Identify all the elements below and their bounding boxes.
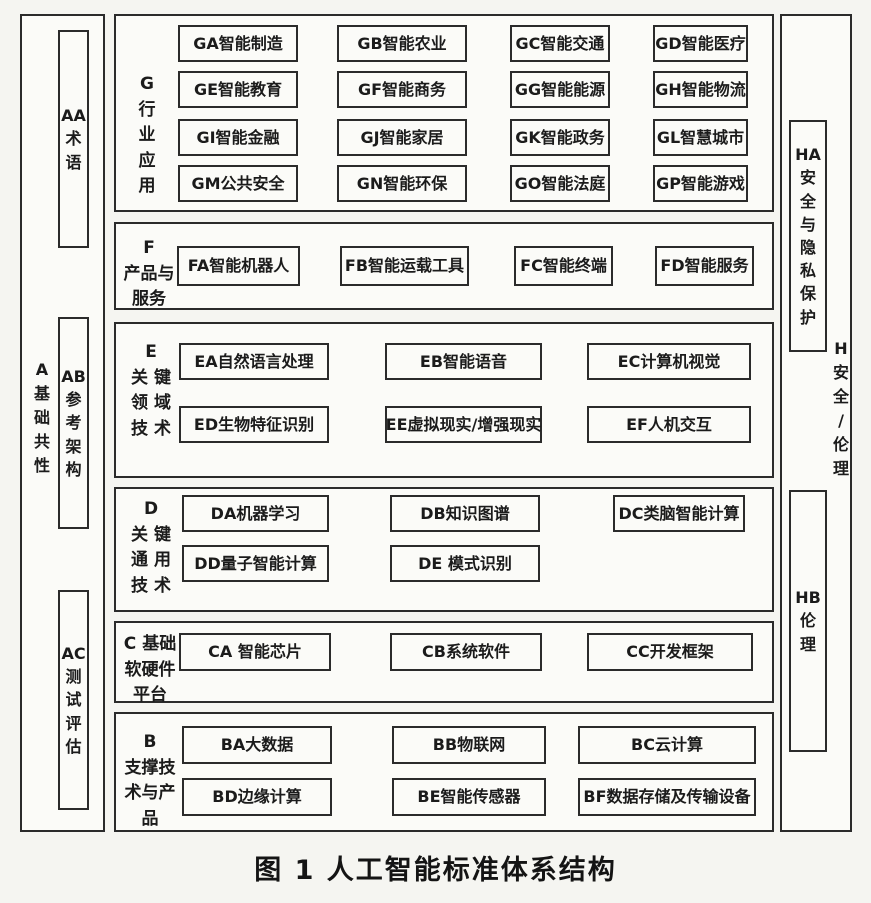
node-BC: BC云计算: [578, 726, 756, 764]
node-GM: GM公共安全: [178, 165, 298, 202]
group-a-basic-common: A基础共性AA术语AB参考架构AC测试评估: [20, 14, 105, 832]
node-DB: DB知识图谱: [390, 495, 540, 532]
section-C-label: C 基础软硬件平台: [121, 632, 179, 709]
node-AA: AA术语: [58, 30, 89, 248]
group-h-label-line: 理: [833, 457, 849, 481]
node-HB-line: 伦: [800, 609, 816, 632]
node-GH: GH智能物流: [653, 71, 748, 108]
section-B-label-line: B: [144, 730, 157, 756]
node-BA: BA大数据: [182, 726, 332, 764]
node-EF: EF人机交互: [587, 406, 751, 443]
node-HB-line: HB: [795, 586, 821, 609]
node-GI: GI智能金融: [178, 119, 298, 156]
section-G-label: G行业应用: [134, 72, 160, 200]
section-D-label-line: D: [144, 497, 158, 523]
group-a-label-line: 础: [34, 406, 50, 430]
node-FA: FA智能机器人: [177, 246, 300, 286]
node-AC-line: 试: [65, 688, 81, 711]
section-E-label-line: E: [145, 340, 157, 366]
node-HB-line: 理: [800, 633, 816, 656]
section-B-label-line: 品: [142, 807, 159, 833]
node-AB-line: 参: [65, 388, 81, 411]
group-a-label-line: 共: [34, 430, 50, 454]
node-CB: CB系统软件: [390, 633, 542, 671]
node-FD: FD智能服务: [655, 246, 754, 286]
node-ED: ED生物特征识别: [179, 406, 329, 443]
node-EA: EA自然语言处理: [179, 343, 329, 380]
section-C-label-line: 软硬件: [125, 658, 176, 684]
section-D: D关 键通 用技 术DA机器学习DB知识图谱DC类脑智能计算DD量子智能计算DE…: [114, 487, 774, 612]
section-D-label: D关 键通 用技 术: [124, 497, 178, 599]
group-h-label-line: 安: [833, 361, 849, 385]
node-GN: GN智能环保: [337, 165, 467, 202]
section-D-label-line: 关 键: [131, 523, 171, 549]
section-E-label-line: 领 域: [131, 391, 171, 417]
node-AC-line: 测: [65, 665, 81, 688]
node-BF: BF数据存储及传输设备: [578, 778, 756, 816]
node-GE: GE智能教育: [178, 71, 298, 108]
node-AA-line: 术: [65, 127, 81, 150]
node-HA-line: 私: [800, 259, 816, 282]
node-AB-line: 架: [65, 435, 81, 458]
section-F-label-line: 服务: [132, 287, 166, 313]
section-G: G行业应用GA智能制造GB智能农业GC智能交通GD智能医疗GE智能教育GF智能商…: [114, 14, 774, 212]
section-G-label-line: 应: [139, 149, 156, 175]
group-h-label-line: 伦: [833, 433, 849, 457]
diagram-canvas: A基础共性AA术语AB参考架构AC测试评估H安全/伦理HA安全与隐私保护HB伦理…: [0, 0, 871, 903]
node-AA-line: AA: [61, 104, 86, 127]
node-FC: FC智能终端: [514, 246, 613, 286]
node-AC-line: 估: [65, 735, 81, 758]
section-B-label-line: 术与产: [125, 781, 176, 807]
node-DC: DC类脑智能计算: [613, 495, 745, 532]
group-a-label: A基础共性: [29, 358, 55, 478]
node-FB: FB智能运载工具: [340, 246, 469, 286]
node-GP: GP智能游戏: [653, 165, 748, 202]
group-a-label-line: A: [36, 358, 48, 382]
node-BE: BE智能传感器: [392, 778, 546, 816]
section-F-label-line: 产品与: [124, 262, 175, 288]
group-h-label-line: 全: [833, 385, 849, 409]
section-E: E关 键领 域技 术EA自然语言处理EB智能语音EC计算机视觉ED生物特征识别E…: [114, 322, 774, 478]
node-HA-line: HA: [795, 143, 821, 166]
node-HB: HB伦理: [789, 490, 827, 752]
node-AB-line: 考: [65, 411, 81, 434]
section-E-label-line: 关 键: [131, 366, 171, 392]
node-GF: GF智能商务: [337, 71, 467, 108]
section-D-label-line: 通 用: [131, 548, 171, 574]
node-HA-line: 隐: [800, 236, 816, 259]
section-B-label-line: 支撑技: [125, 756, 176, 782]
node-AA-line: 语: [65, 151, 81, 174]
node-AB-line: 构: [65, 458, 81, 481]
node-AC: AC测试评估: [58, 590, 89, 810]
node-AC-line: AC: [61, 642, 85, 665]
section-F: F产品与服务FA智能机器人FB智能运载工具FC智能终端FD智能服务: [114, 222, 774, 310]
section-F-label-line: F: [143, 236, 155, 262]
section-G-label-line: 用: [139, 174, 156, 200]
group-a-label-line: 性: [34, 454, 50, 478]
node-CA: CA 智能芯片: [179, 633, 331, 671]
node-BD: BD边缘计算: [182, 778, 332, 816]
node-AC-line: 评: [65, 712, 81, 735]
figure-caption: 图 1 人工智能标准体系结构: [0, 848, 871, 887]
group-h-label: H安全/伦理: [830, 337, 852, 481]
node-GB: GB智能农业: [337, 25, 467, 62]
node-AB-line: AB: [61, 365, 86, 388]
node-EC: EC计算机视觉: [587, 343, 751, 380]
node-HA-line: 保: [800, 282, 816, 305]
node-GJ: GJ智能家居: [337, 119, 467, 156]
node-GK: GK智能政务: [510, 119, 610, 156]
node-HA: HA安全与隐私保护: [789, 120, 827, 352]
section-F-label: F产品与服务: [122, 236, 176, 313]
node-AB: AB参考架构: [58, 317, 89, 529]
node-HA-line: 全: [800, 190, 816, 213]
section-B-label: B支撑技术与产品: [122, 730, 178, 832]
node-GD: GD智能医疗: [653, 25, 748, 62]
node-DD: DD量子智能计算: [182, 545, 329, 582]
section-G-label-line: 行: [139, 98, 156, 124]
node-GL: GL智慧城市: [653, 119, 748, 156]
group-a-label-line: 基: [34, 382, 50, 406]
node-CC: CC开发框架: [587, 633, 753, 671]
node-GO: GO智能法庭: [510, 165, 610, 202]
section-C: C 基础软硬件平台CA 智能芯片CB系统软件CC开发框架: [114, 621, 774, 703]
node-HA-line: 护: [800, 306, 816, 329]
group-h-label-line: /: [838, 409, 844, 433]
node-HA-line: 与: [800, 213, 816, 236]
node-DE: DE 模式识别: [390, 545, 540, 582]
section-C-label-line: 平台: [133, 683, 167, 709]
node-GG: GG智能能源: [510, 71, 610, 108]
node-EB: EB智能语音: [385, 343, 542, 380]
section-D-label-line: 技 术: [131, 574, 171, 600]
node-BB: BB物联网: [392, 726, 546, 764]
section-G-label-line: G: [140, 72, 154, 98]
node-GC: GC智能交通: [510, 25, 610, 62]
section-E-label-line: 技 术: [131, 417, 171, 443]
section-E-label: E关 键领 域技 术: [124, 340, 178, 442]
node-GA: GA智能制造: [178, 25, 298, 62]
node-EE: EE虚拟现实/增强现实: [385, 406, 542, 443]
group-h-security-ethics: H安全/伦理HA安全与隐私保护HB伦理: [780, 14, 852, 832]
section-C-label-line: C 基础: [124, 632, 176, 658]
group-h-label-line: H: [834, 337, 847, 361]
node-DA: DA机器学习: [182, 495, 329, 532]
section-B: B支撑技术与产品BA大数据BB物联网BC云计算BD边缘计算BE智能传感器BF数据…: [114, 712, 774, 832]
node-HA-line: 安: [800, 166, 816, 189]
section-G-label-line: 业: [139, 123, 156, 149]
